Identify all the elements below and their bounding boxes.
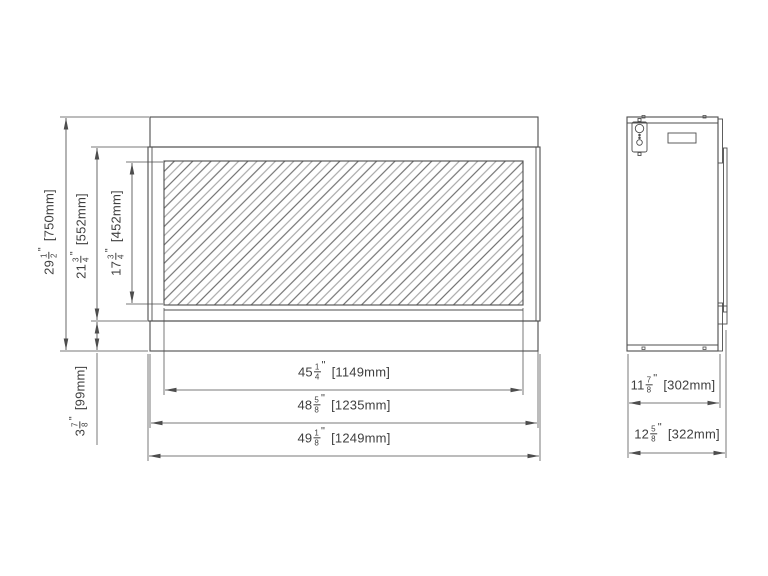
fraction: 58 (313, 395, 320, 414)
flange-top-bracket (718, 119, 723, 163)
dim-label-glass-width: 4514"[1149mm] (298, 362, 390, 381)
fraction: 18 (313, 428, 320, 447)
front-bottom-band (150, 321, 538, 351)
edge-screw-ticks (642, 116, 706, 350)
dim-label-glass-height: 1734"[452mm] (106, 190, 125, 276)
junction-box-dot (639, 137, 641, 139)
front-view (148, 117, 540, 351)
dim-label-base-height: 378"[99mm] (70, 366, 89, 437)
side-view (627, 116, 727, 352)
dim-label-face-width: 4858"[1235mm] (297, 395, 390, 414)
front-top-band (150, 117, 538, 147)
dim-label-total-height: 2912"[750mm] (39, 189, 58, 275)
fraction: 14 (314, 362, 321, 381)
dim-label-overall-depth: 1258"[322mm] (634, 424, 720, 443)
glass-plate-edge (724, 148, 728, 312)
technical-drawing-canvas: 2912"[750mm] 2134"[552mm] 1734"[452mm] 3… (0, 0, 768, 576)
dim-label-body-depth: 1178"[302mm] (631, 375, 716, 394)
glass-hatch-area (164, 161, 523, 305)
dim-label-body-height: 2134"[552mm] (71, 193, 90, 279)
junction-box-dot (639, 134, 641, 136)
fraction: 78 (70, 421, 89, 428)
junction-box (632, 119, 647, 156)
fraction: 34 (106, 253, 125, 260)
drawing-linework (0, 0, 768, 576)
fraction: 78 (646, 375, 653, 394)
fraction: 12 (39, 252, 58, 259)
junction-box-screw (638, 119, 641, 122)
flange-bottom-bracket (718, 303, 723, 351)
fraction: 34 (71, 256, 90, 263)
fraction: 58 (650, 424, 657, 443)
vent-slot (668, 133, 696, 143)
junction-box-screw (638, 153, 641, 156)
front-flange (718, 119, 727, 351)
dim-label-overall-width: 4918"[1249mm] (297, 428, 390, 447)
